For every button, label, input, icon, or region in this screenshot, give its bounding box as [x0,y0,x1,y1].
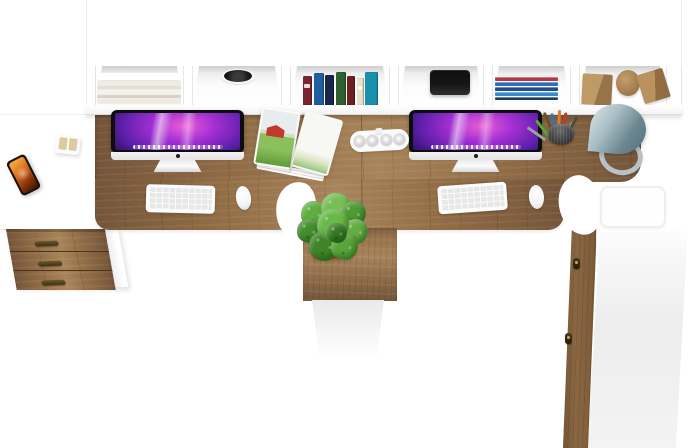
chair-right [556,173,606,238]
flat-book [495,82,558,86]
drawer [7,232,109,252]
hutch-left-wall [86,66,96,106]
drawer-handle [37,260,62,266]
desk-organizer [54,134,81,156]
apple-logo-icon [474,154,478,158]
speaker [430,70,470,95]
computer-stand [452,159,500,172]
wardrobe-handle [565,333,572,344]
hutch-right-wall [666,66,682,106]
galaxy-wallpaper [413,113,538,150]
power-socket [366,134,380,148]
keyboard-keys [440,185,504,211]
keyboard-right [437,182,508,215]
organizer-slot [58,137,67,150]
hutch-back-panel [86,0,682,67]
flat-book [495,87,558,90]
book-spine [336,72,346,105]
under-desk-drawer-box [600,186,666,228]
dock-bar [133,145,223,149]
power-socket [353,135,367,149]
magazine-spine [97,73,181,80]
hutch-divider [183,66,193,106]
keyboard-keys [149,187,213,211]
product-image [0,0,700,448]
book-spine [365,72,378,105]
flat-book-stack [495,76,558,100]
magazine-spine [97,95,181,99]
drawer [13,271,115,290]
power-strip [349,128,409,152]
book-spine [357,78,364,105]
apple-logo-icon [176,154,180,158]
magazine-stack [97,72,181,103]
book-spine [314,73,324,105]
power-socket [393,133,407,147]
power-strip-hinge [375,128,382,134]
computer-left [111,110,244,172]
computer-screen [409,110,542,152]
book-spine [347,76,355,105]
magazine-spine [97,99,181,103]
potted-plant [297,193,369,267]
drawer-pedestal [6,229,128,287]
center-cabinet [306,300,390,362]
drawer-handle [41,280,66,286]
wardrobe-top-panel [588,224,690,448]
hutch-divider [483,66,493,106]
drawer-fronts [6,229,116,290]
power-socket [380,133,394,147]
hutch-divider [570,66,580,106]
organizer-slot [68,138,77,151]
standing-books [303,70,389,105]
wooden-cylinder-bookend [616,70,640,96]
flat-book [495,92,558,96]
cable-grommet-hole [224,70,252,82]
book-spine [303,76,312,105]
computer-stand [154,159,202,172]
computer-chin [111,152,244,160]
red-barn [266,124,286,139]
hutch-divider [389,66,399,106]
magazine-spine [97,81,181,85]
drawer [10,252,112,272]
leaf-cluster [327,223,347,243]
magazine-spine [97,86,181,90]
flat-book [495,77,558,81]
magazine-spine [97,90,181,94]
keyboard-left [146,184,216,214]
galaxy-wallpaper [115,113,240,150]
computer-right [409,110,542,172]
wardrobe-handle [573,258,580,269]
dock-bar [431,145,521,149]
book-spine [325,75,334,105]
pencil-cup [548,124,574,145]
computer-screen [111,110,244,152]
computer-chin [409,152,542,160]
wooden-cube-bookend [581,73,613,106]
drawer-handle [34,241,59,247]
hutch-divider [281,66,291,106]
flat-book [495,97,558,100]
